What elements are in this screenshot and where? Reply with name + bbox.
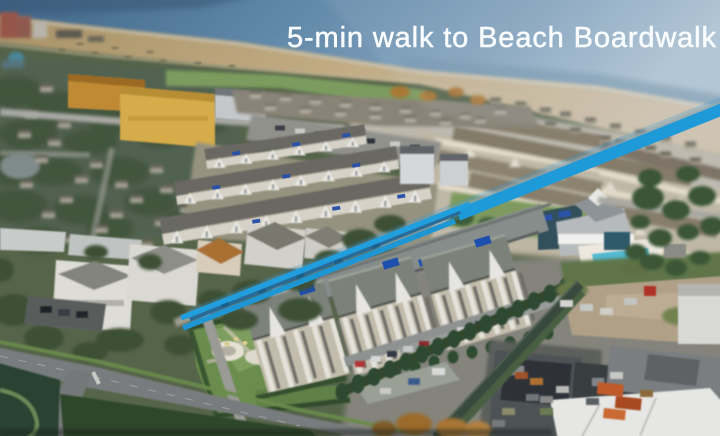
- svg-text:5-min walk to Beach Boardwalk: 5-min walk to Beach Boardwalk: [287, 22, 717, 54]
